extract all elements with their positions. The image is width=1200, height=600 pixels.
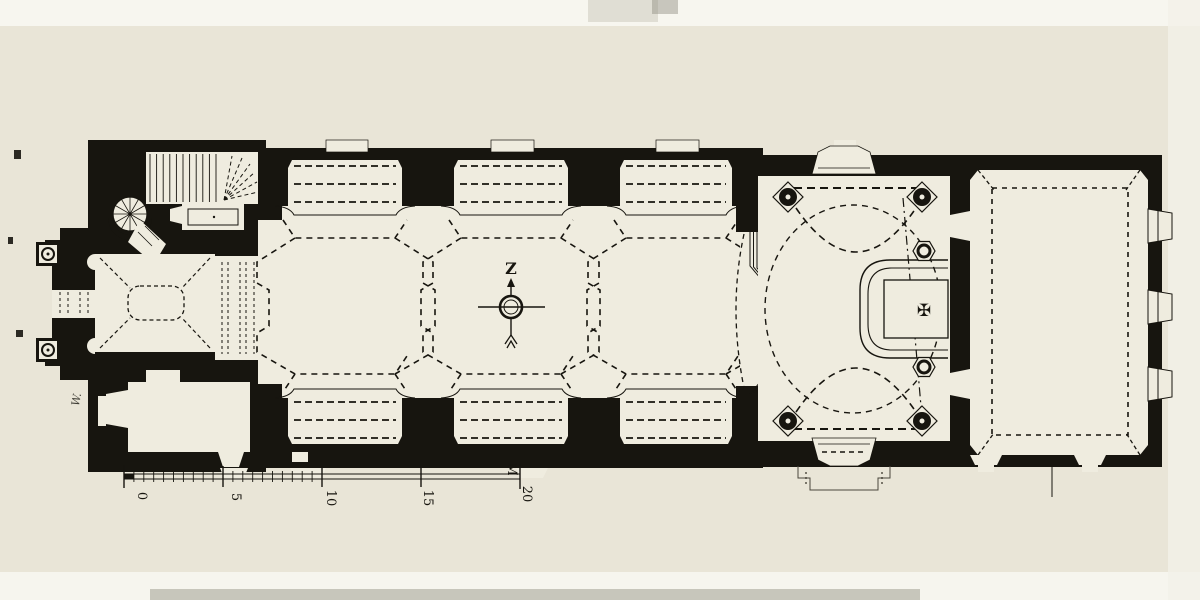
stair-hall: [146, 152, 258, 204]
room-niche: [106, 390, 128, 428]
nave-floor: [258, 206, 760, 398]
scale-label-15: 15: [420, 490, 435, 507]
scale-unit-label: M: [504, 462, 519, 475]
scan-edge-band: [150, 589, 920, 600]
compass-north-label: Z: [505, 259, 517, 278]
porch-column: [47, 349, 50, 352]
porch-column: [47, 253, 50, 256]
chancel: ✠: [758, 140, 950, 490]
south-wall-niches: [275, 389, 745, 444]
annex-floor: [970, 170, 1148, 455]
entrance-passage: [52, 290, 95, 318]
scan-smudge: [652, 0, 678, 14]
doorway-to-nave: [215, 256, 261, 360]
handwritten-annotation: W.: [69, 392, 84, 407]
scan-speck: [14, 150, 21, 159]
scan-smudge: [588, 0, 658, 22]
scan-speck: [8, 237, 13, 244]
north-wall-niches: [275, 160, 745, 215]
scale-label-10: 10: [323, 490, 338, 507]
nave-west-pier: [252, 384, 282, 398]
altar-cross-icon: ✠: [917, 301, 931, 321]
church-floor-plan-drawing: ✠: [0, 0, 1200, 600]
scanned-floor-plan-page: ✠: [0, 0, 1200, 600]
east-annex: [950, 170, 1172, 497]
scale-label-5: 5: [228, 493, 243, 501]
nave-west-pier: [252, 206, 282, 220]
tower-vestibule: [95, 254, 215, 352]
nave: [220, 140, 764, 480]
scale-label-20: 20: [519, 486, 534, 503]
scan-speck: [16, 330, 23, 337]
scale-label-0: 0: [134, 492, 149, 500]
annex-east-windows: [1148, 209, 1172, 401]
